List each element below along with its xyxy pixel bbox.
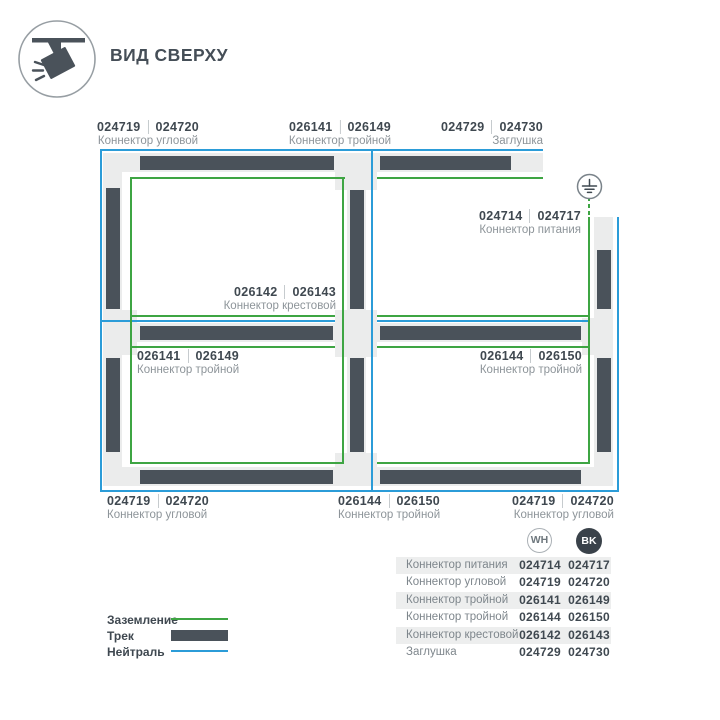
page: ВИД СВЕРХУ [0, 0, 720, 720]
ground-line-mid-vertical [342, 177, 344, 464]
ground-symbol-icon [576, 173, 603, 200]
legend-neutral-swatch [171, 650, 228, 652]
page-title: ВИД СВЕРХУ [110, 45, 228, 66]
track-segment [140, 326, 333, 340]
label-triple-connector-right: 026144026150 Коннектор тройной [480, 350, 582, 377]
column-header-black: BK [576, 528, 602, 554]
track-segment [350, 358, 364, 452]
ground-feed-dashed-line [588, 197, 590, 217]
track-segment [106, 188, 120, 309]
ground-line-bottom [377, 462, 590, 464]
neutral-line-right [617, 217, 619, 492]
table-row: Коннектор крестовой026142026143 [396, 627, 611, 644]
table-row: Заглушка024729024730 [396, 644, 611, 661]
label-end-cap: 024729024730 Заглушка [441, 121, 543, 148]
track-segment [597, 358, 611, 452]
label-corner-connector-bottom-right: 024719024720 Коннектор угловой [512, 495, 614, 522]
track-segment [380, 156, 511, 170]
track-light-icon [17, 19, 97, 99]
table-row: Коннектор тройной026144026150 [396, 609, 611, 626]
neutral-line-bottom [100, 490, 619, 492]
neutral-line-mid-vertical [371, 149, 373, 492]
track-segment [350, 190, 364, 309]
track-segment [380, 326, 581, 340]
ground-line-bottom [130, 462, 344, 464]
table-row: Коннектор тройной026141026149 [396, 592, 611, 609]
track-segment [106, 358, 120, 452]
ground-line-top [377, 177, 543, 179]
connector-block-right-t [582, 318, 613, 355]
ground-line-mid-horizontal [130, 346, 335, 348]
legend-track-swatch [171, 630, 228, 641]
neutral-line-mid-horizontal [377, 320, 590, 322]
neutral-line-top [100, 149, 543, 151]
legend-ground-swatch [171, 618, 228, 620]
label-corner-connector-top: 024719024720 Коннектор угловой [97, 121, 199, 148]
neutral-line-mid-horizontal [100, 320, 335, 322]
label-triple-connector-left: 026141026149 Коннектор тройной [137, 350, 239, 377]
track-segment [140, 470, 333, 484]
label-triple-connector-top: 026141026149 Коннектор тройной [289, 121, 391, 148]
track-segment [140, 156, 334, 170]
ground-line-cell-bottom [377, 315, 589, 317]
ground-line-cell-bottom [130, 315, 335, 317]
label-cross-connector: 026142026143 Коннектор крестовой [224, 286, 336, 313]
label-corner-connector-bottom-left: 024719024720 Коннектор угловой [107, 495, 209, 522]
parts-table: Коннектор питания024714024717 Коннектор … [396, 557, 611, 661]
ground-line-top [130, 177, 345, 179]
column-header-white: WH [527, 528, 552, 553]
ground-line-right [588, 217, 590, 464]
ground-line-mid-horizontal [377, 346, 589, 348]
ground-line-left [130, 177, 132, 464]
legend-item-track: Трек [107, 627, 237, 643]
track-segment [380, 470, 581, 484]
label-power-connector: 024714024717 Коннектор питания [479, 210, 581, 237]
table-row: Коннектор угловой024719024720 [396, 574, 611, 591]
legend-item-neutral: Нейтраль [107, 643, 237, 659]
label-triple-connector-bottom: 026144026150 Коннектор тройной [338, 495, 440, 522]
table-row: Коннектор питания024714024717 [396, 557, 611, 574]
legend-item-ground: Заземление [107, 611, 237, 627]
track-segment [597, 250, 611, 309]
